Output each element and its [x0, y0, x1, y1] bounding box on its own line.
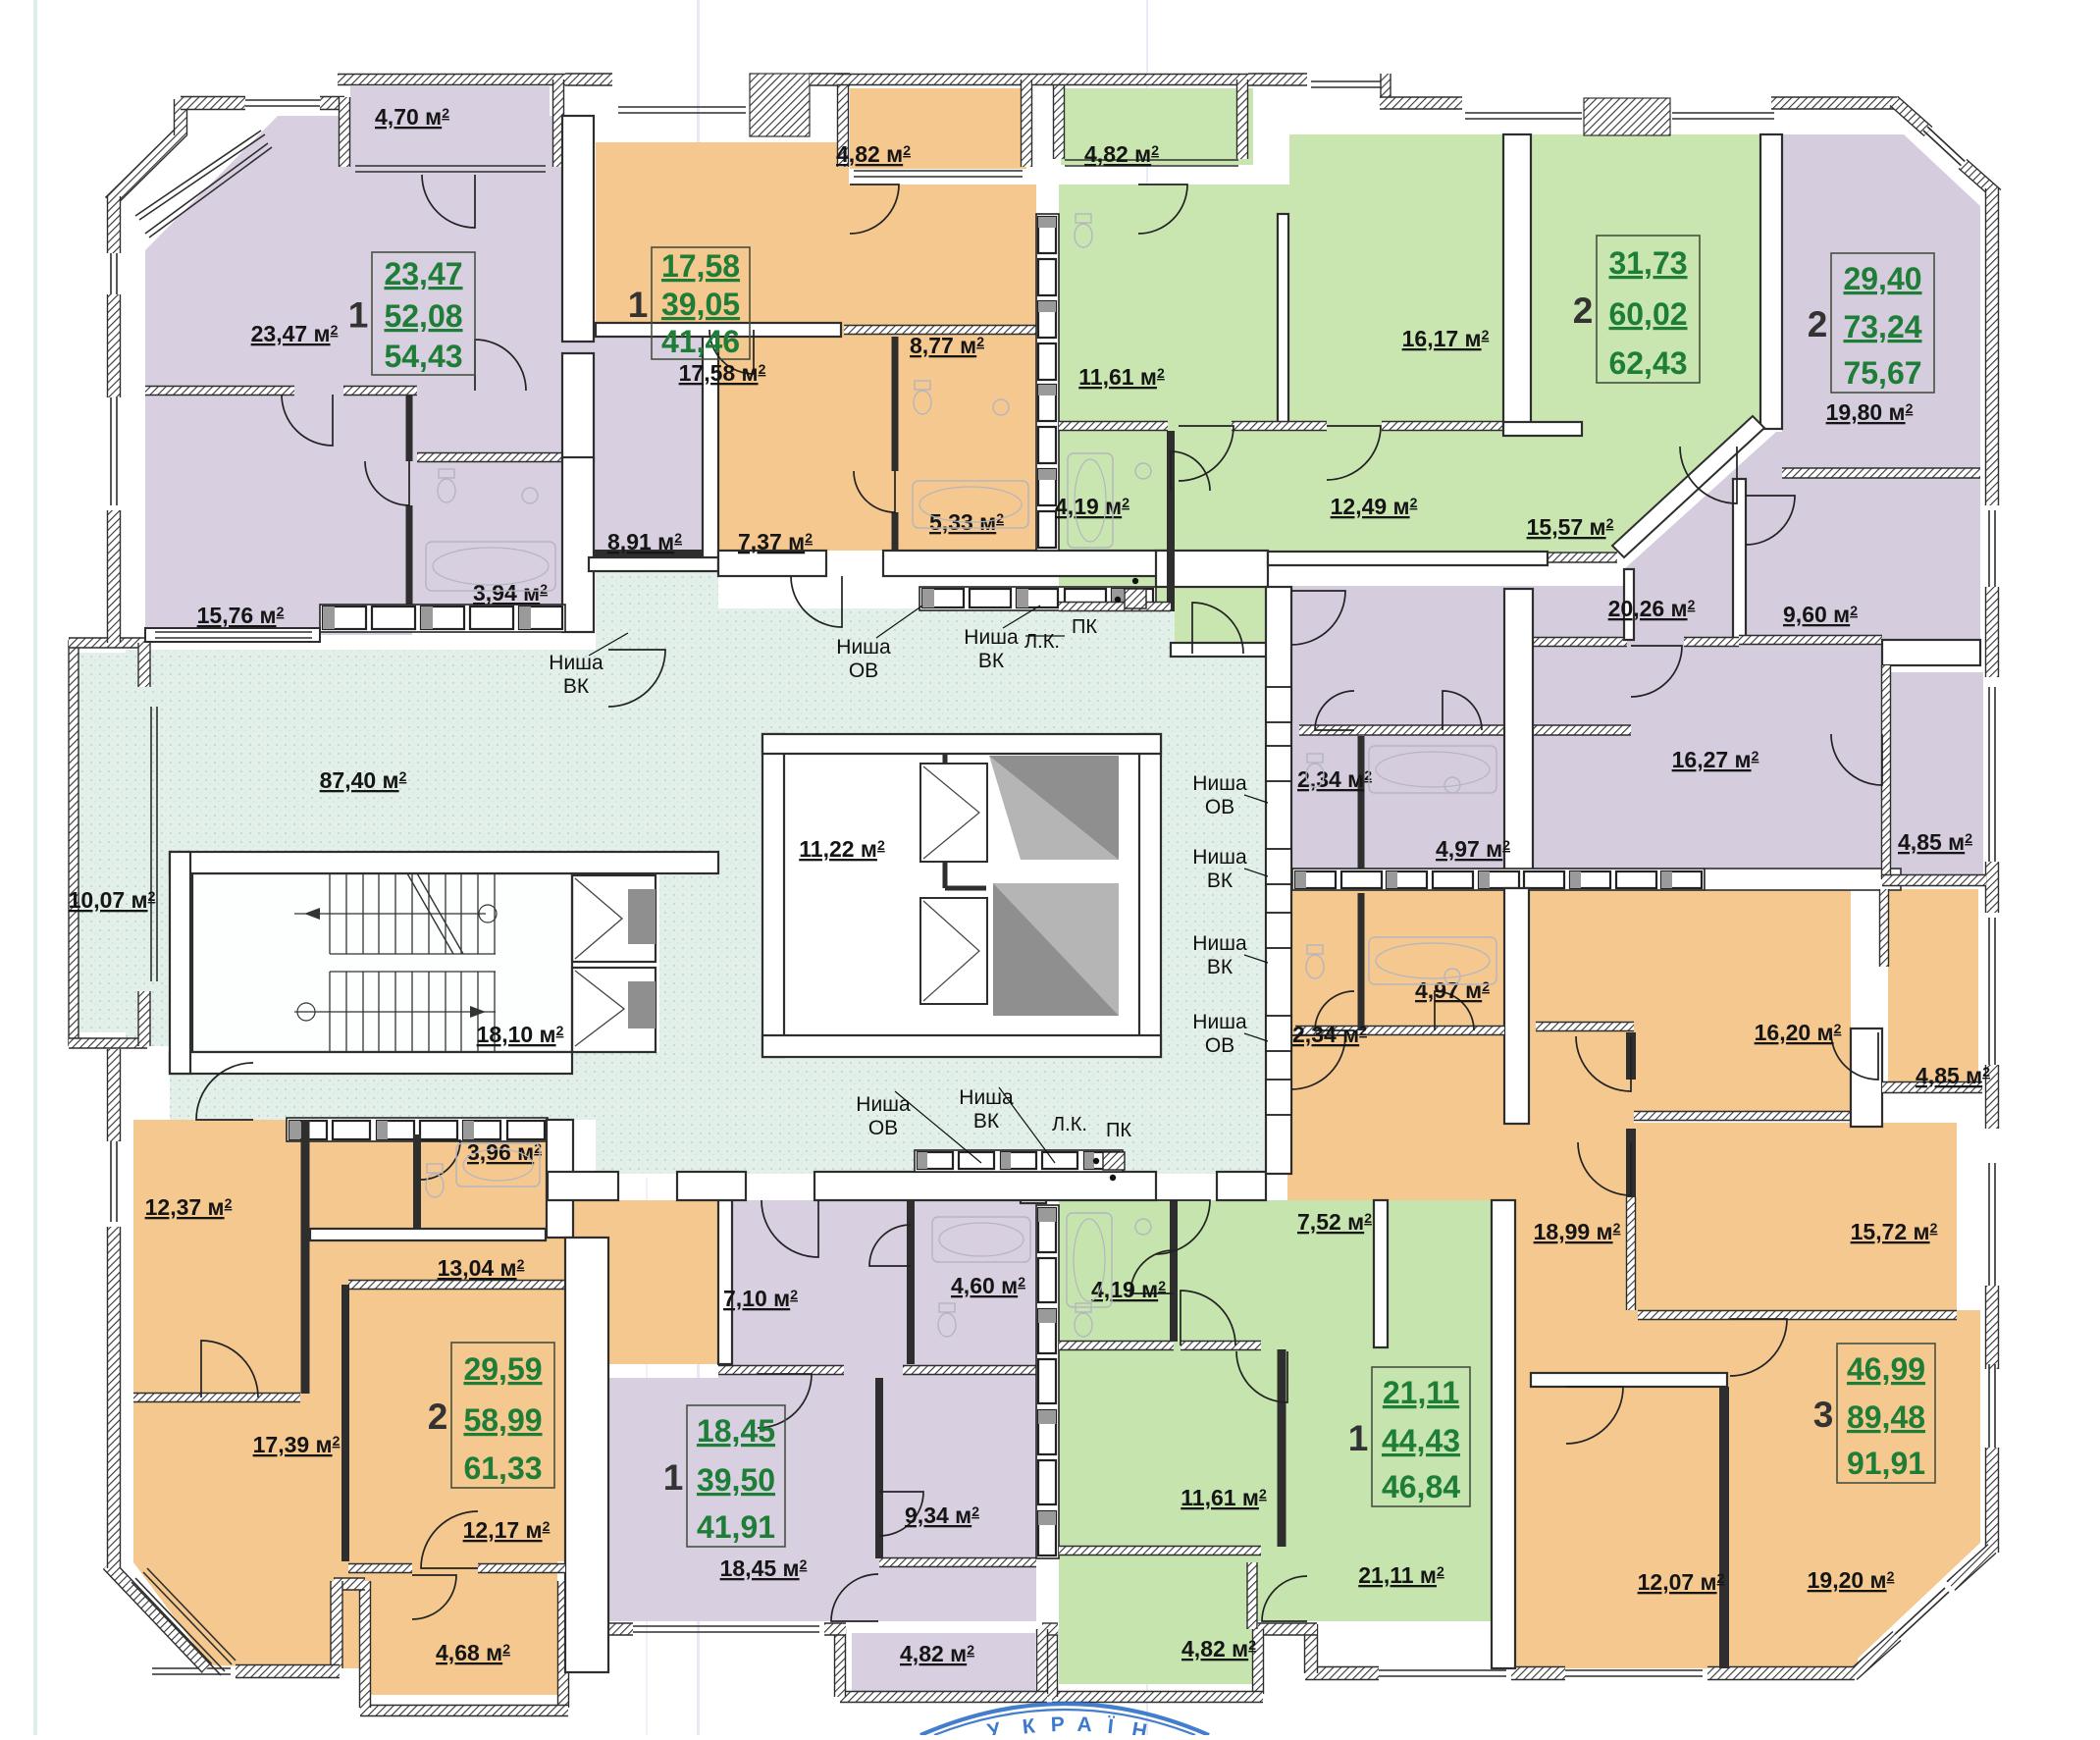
- svg-text:12,37 м2: 12,37 м2: [145, 1194, 233, 1220]
- svg-text:А: А: [1076, 1714, 1092, 1735]
- svg-text:Ниша: Ниша: [1192, 846, 1247, 869]
- svg-text:4,82 м2: 4,82 м2: [836, 141, 911, 167]
- svg-text:Р: Р: [1050, 1714, 1065, 1735]
- svg-text:4,70 м2: 4,70 м2: [375, 104, 449, 130]
- svg-text:ВК: ВК: [1207, 870, 1234, 892]
- svg-text:8,77 м2: 8,77 м2: [910, 333, 984, 358]
- svg-text:23,47: 23,47: [384, 256, 462, 291]
- svg-text:1: 1: [1348, 1418, 1369, 1458]
- svg-text:13,04 м2: 13,04 м2: [438, 1255, 525, 1281]
- svg-text:12,07 м2: 12,07 м2: [1638, 1569, 1725, 1595]
- svg-text:ВК: ВК: [973, 1110, 1000, 1133]
- svg-text:16,27 м2: 16,27 м2: [1672, 747, 1759, 772]
- svg-text:15,72 м2: 15,72 м2: [1851, 1219, 1938, 1244]
- svg-text:17,58: 17,58: [661, 248, 740, 284]
- svg-text:23,47 м2: 23,47 м2: [251, 321, 339, 346]
- svg-text:15,76 м2: 15,76 м2: [197, 603, 285, 628]
- svg-text:Ниша: Ниша: [549, 652, 604, 674]
- svg-text:61,33: 61,33: [463, 1450, 542, 1486]
- svg-text:4,97 м2: 4,97 м2: [1415, 977, 1490, 1003]
- svg-text:17,58 м2: 17,58 м2: [679, 360, 766, 386]
- svg-text:К: К: [1022, 1714, 1036, 1735]
- svg-text:19,20 м2: 19,20 м2: [1808, 1567, 1895, 1593]
- svg-text:1: 1: [628, 285, 649, 325]
- svg-text:1: 1: [663, 1457, 684, 1498]
- svg-text:89,48: 89,48: [1847, 1399, 1925, 1435]
- svg-text:Ниша: Ниша: [1192, 772, 1247, 795]
- svg-text:54,43: 54,43: [384, 339, 462, 374]
- svg-text:16,17 м2: 16,17 м2: [1402, 326, 1490, 351]
- svg-text:ОВ: ОВ: [868, 1117, 898, 1139]
- svg-text:4,85 м2: 4,85 м2: [1916, 1063, 1990, 1088]
- svg-text:8,91 м2: 8,91 м2: [607, 529, 682, 554]
- svg-text:Л.К.: Л.К.: [1024, 631, 1060, 653]
- svg-text:ПК: ПК: [1072, 616, 1097, 638]
- svg-text:Ниша: Ниша: [1192, 932, 1247, 955]
- svg-text:52,08: 52,08: [384, 298, 462, 334]
- svg-text:15,57 м2: 15,57 м2: [1527, 514, 1614, 540]
- svg-text:11,61 м2: 11,61 м2: [1078, 364, 1165, 390]
- svg-text:7,52 м2: 7,52 м2: [1297, 1209, 1372, 1235]
- svg-text:16,20 м2: 16,20 м2: [1755, 1020, 1842, 1045]
- svg-text:4,82 м2: 4,82 м2: [1181, 1636, 1256, 1661]
- svg-text:46,99: 46,99: [1847, 1351, 1925, 1387]
- svg-text:Л.К.: Л.К.: [1052, 1114, 1087, 1135]
- svg-text:ПК: ПК: [1106, 1120, 1131, 1141]
- svg-text:21,11: 21,11: [1383, 1375, 1459, 1410]
- svg-text:4,85 м2: 4,85 м2: [1898, 829, 1972, 855]
- svg-text:18,45 м2: 18,45 м2: [720, 1555, 808, 1581]
- svg-text:41,46: 41,46: [661, 324, 740, 359]
- svg-text:20,26 м2: 20,26 м2: [1608, 596, 1696, 621]
- svg-text:29,40: 29,40: [1843, 261, 1921, 296]
- svg-text:12,17 м2: 12,17 м2: [463, 1517, 551, 1543]
- svg-text:ОВ: ОВ: [1205, 796, 1234, 818]
- svg-text:Н: Н: [1130, 1718, 1149, 1735]
- svg-text:44,43: 44,43: [1382, 1423, 1460, 1458]
- svg-text:4,68 м2: 4,68 м2: [436, 1640, 510, 1665]
- svg-text:18,99 м2: 18,99 м2: [1534, 1219, 1621, 1244]
- svg-text:91,91: 91,91: [1847, 1446, 1925, 1481]
- svg-text:4,97 м2: 4,97 м2: [1436, 836, 1510, 862]
- svg-text:62,43: 62,43: [1608, 345, 1687, 381]
- svg-text:2: 2: [1808, 304, 1828, 344]
- svg-text:ВК: ВК: [978, 650, 1005, 672]
- svg-text:2,34 м2: 2,34 м2: [1292, 1022, 1367, 1047]
- svg-text:11,61 м2: 11,61 м2: [1181, 1485, 1267, 1510]
- svg-text:Ниша: Ниша: [836, 636, 891, 659]
- svg-text:2,34 м2: 2,34 м2: [1297, 766, 1372, 792]
- svg-text:1: 1: [348, 295, 369, 336]
- svg-text:Ниша: Ниша: [964, 626, 1019, 649]
- svg-text:19,80 м2: 19,80 м2: [1826, 399, 1914, 425]
- svg-text:Ниша: Ниша: [959, 1086, 1014, 1109]
- svg-text:2: 2: [1573, 290, 1594, 331]
- svg-text:21,11 м2: 21,11 м2: [1358, 1562, 1444, 1588]
- svg-text:31,73: 31,73: [1608, 245, 1687, 281]
- svg-text:ВК: ВК: [563, 675, 590, 698]
- svg-text:7,10 м2: 7,10 м2: [723, 1286, 798, 1311]
- svg-text:75,67: 75,67: [1843, 355, 1921, 391]
- svg-text:7,37 м2: 7,37 м2: [738, 529, 813, 554]
- svg-text:ОВ: ОВ: [849, 659, 878, 682]
- svg-text:87,40 м2: 87,40 м2: [320, 767, 407, 793]
- svg-text:12,49 м2: 12,49 м2: [1331, 494, 1418, 519]
- svg-text:39,50: 39,50: [697, 1462, 775, 1498]
- svg-text:46,84: 46,84: [1382, 1469, 1460, 1504]
- svg-text:ОВ: ОВ: [1205, 1034, 1234, 1057]
- svg-text:Ниша: Ниша: [856, 1093, 911, 1116]
- svg-text:2: 2: [428, 1397, 448, 1437]
- svg-text:58,99: 58,99: [463, 1402, 542, 1438]
- svg-text:4,82 м2: 4,82 м2: [900, 1641, 974, 1666]
- svg-text:18,45: 18,45: [697, 1413, 775, 1449]
- svg-text:18,10 м2: 18,10 м2: [477, 1022, 564, 1047]
- svg-text:73,24: 73,24: [1843, 309, 1921, 344]
- svg-text:60,02: 60,02: [1608, 296, 1687, 332]
- svg-text:4,82 м2: 4,82 м2: [1084, 141, 1159, 167]
- svg-text:4,19 м2: 4,19 м2: [1055, 494, 1129, 519]
- svg-text:41,91: 41,91: [697, 1509, 775, 1545]
- svg-text:4,60 м2: 4,60 м2: [951, 1273, 1025, 1298]
- svg-text:ВК: ВК: [1207, 956, 1234, 978]
- svg-text:17,39 м2: 17,39 м2: [253, 1432, 341, 1457]
- svg-text:29,59: 29,59: [463, 1351, 542, 1387]
- svg-text:Ниша: Ниша: [1192, 1011, 1247, 1033]
- svg-text:39,05: 39,05: [661, 287, 740, 322]
- svg-text:3: 3: [1813, 1395, 1834, 1435]
- svg-text:11,22 м2: 11,22 м2: [799, 836, 885, 862]
- svg-text:10,07 м2: 10,07 м2: [69, 887, 156, 913]
- svg-text:9,34 м2: 9,34 м2: [905, 1503, 979, 1528]
- svg-text:9,60 м2: 9,60 м2: [1783, 602, 1858, 627]
